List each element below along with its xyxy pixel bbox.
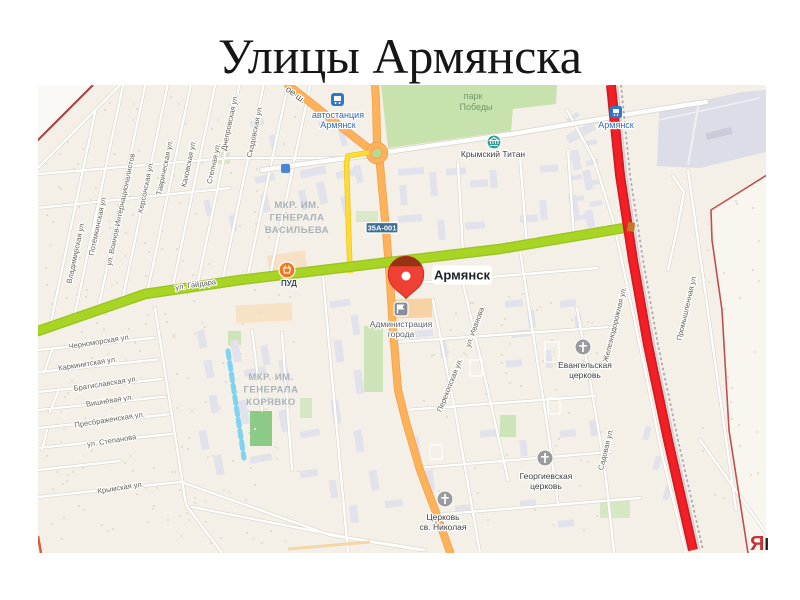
svg-text:КОРЯВКО: КОРЯВКО — [246, 397, 296, 408]
svg-text:МКР. ИМ.: МКР. ИМ. — [274, 200, 319, 211]
svg-text:парк: парк — [464, 91, 483, 101]
svg-text:церковь: церковь — [569, 370, 601, 380]
svg-text:ВАСИЛЬЕВА: ВАСИЛЬЕВА — [265, 225, 329, 236]
svg-text:Администрация: Администрация — [370, 319, 433, 329]
svg-text:Армянск: Армянск — [598, 120, 634, 130]
svg-text:города: города — [388, 329, 415, 339]
svg-text:Церковь: Церковь — [426, 512, 460, 522]
svg-text:ГЕНЕРАЛА: ГЕНЕРАЛА — [244, 385, 299, 396]
svg-text:Армянск: Армянск — [320, 120, 356, 130]
svg-text:автостанция: автостанция — [312, 110, 364, 120]
svg-text:Георгиевская: Георгиевская — [520, 471, 573, 481]
svg-text:Крымский Титан: Крымский Титан — [461, 149, 526, 159]
svg-text:ГЕНЕРАЛА: ГЕНЕРАЛА — [270, 213, 325, 224]
svg-text:ПУД: ПУД — [281, 279, 297, 288]
svg-text:Победы: Победы — [459, 102, 492, 112]
svg-text:Армянск: Армянск — [434, 268, 490, 283]
svg-text:35А-001: 35А-001 — [368, 224, 397, 233]
svg-text:церковь: церковь — [530, 481, 562, 491]
svg-text:Евангельская: Евангельская — [558, 360, 612, 370]
svg-text:св. Николая: св. Николая — [419, 522, 466, 532]
svg-text:МКР. ИМ.: МКР. ИМ. — [248, 372, 293, 383]
